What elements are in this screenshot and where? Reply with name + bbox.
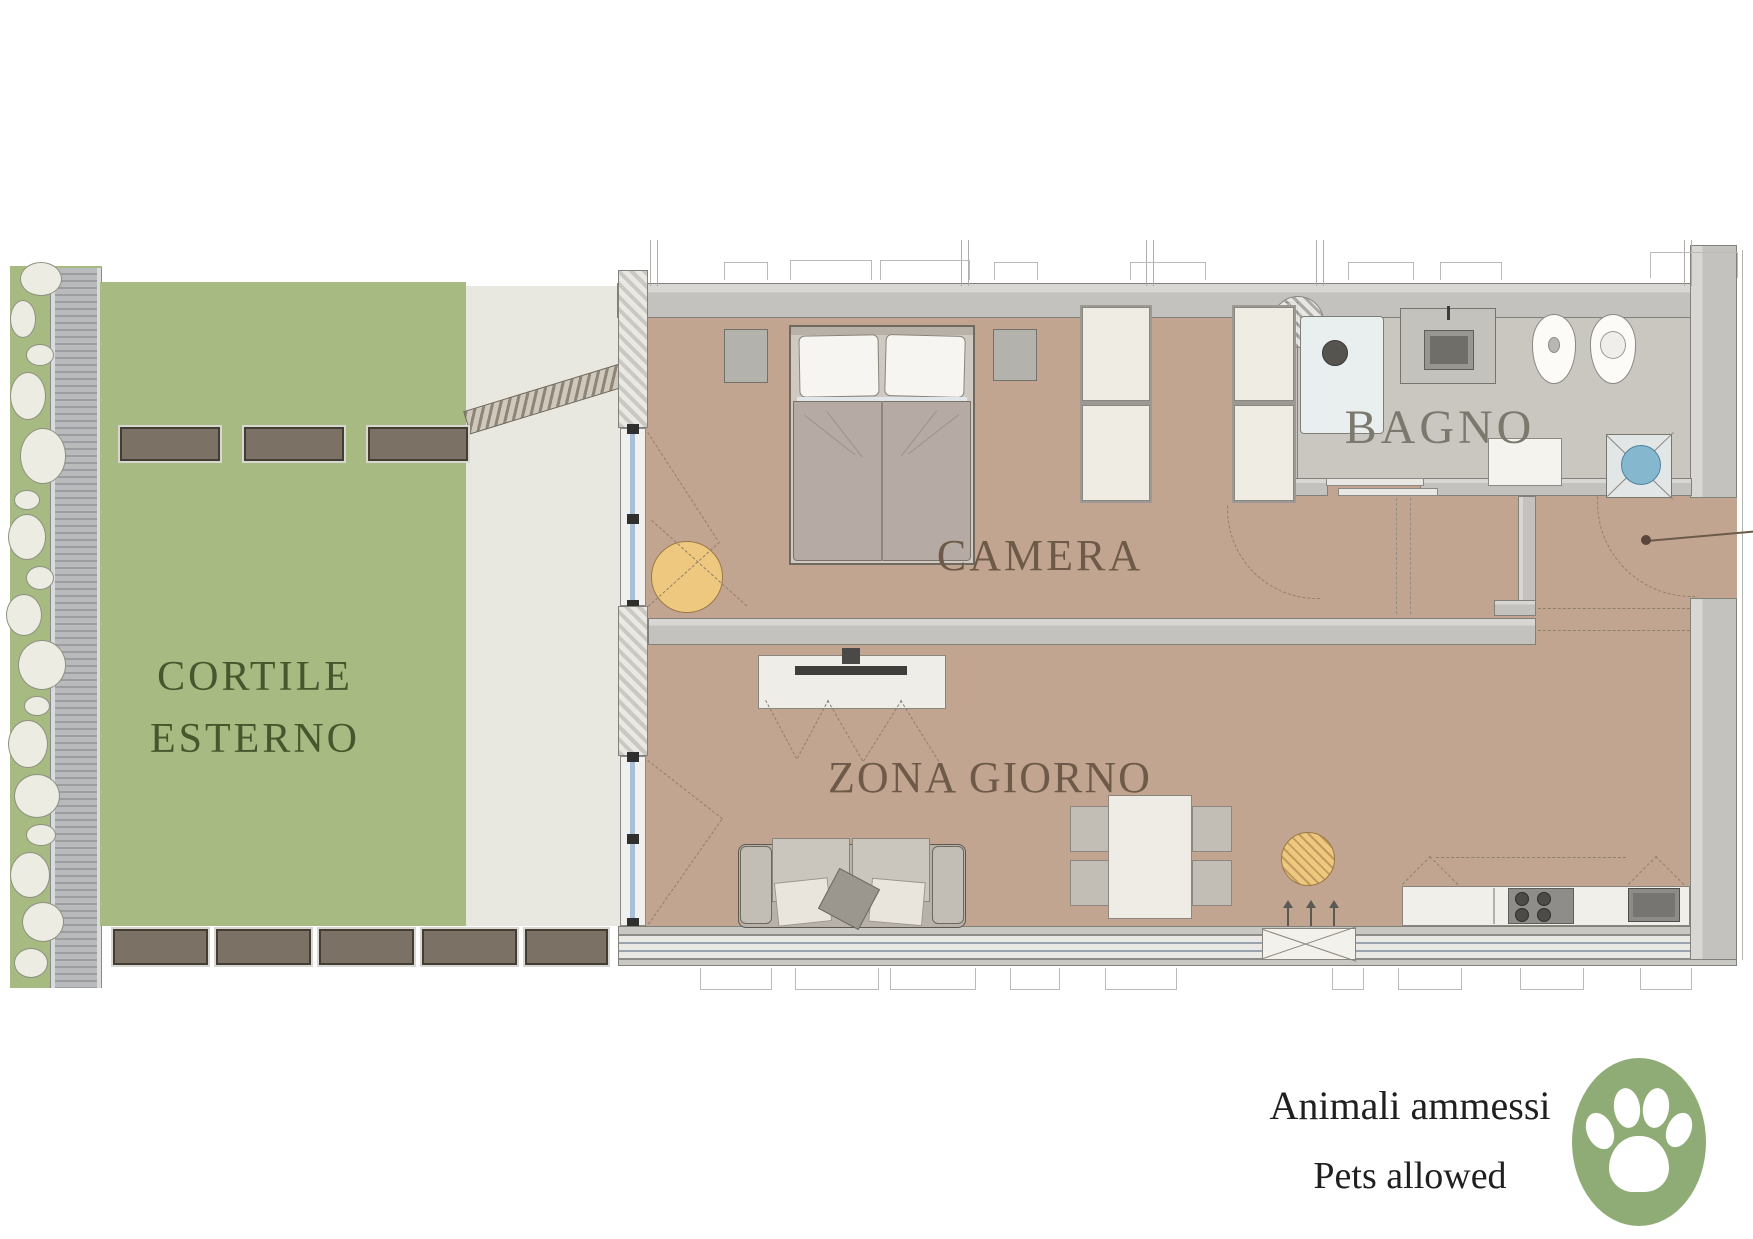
stone [18, 640, 66, 690]
stone [10, 300, 36, 338]
stone [20, 428, 66, 484]
throw-pillow [868, 878, 926, 927]
context-mark [1650, 252, 1738, 278]
wardrobe-cell [1082, 307, 1150, 401]
planter [216, 929, 311, 965]
nightstand [993, 329, 1037, 381]
east-wall-lower [1690, 598, 1737, 960]
headboard [791, 327, 973, 335]
shower-box [1606, 434, 1672, 498]
counter-divider [1493, 888, 1495, 924]
cooktop [1508, 888, 1574, 924]
stone [14, 490, 40, 510]
stone [10, 372, 46, 420]
east-outer-line [1742, 250, 1748, 960]
airflow-arrow [1306, 900, 1316, 926]
planter [244, 427, 344, 461]
sliding-door-panel [1326, 478, 1424, 486]
wardrobe-cell [1234, 405, 1294, 501]
sofa-armrest [740, 846, 772, 924]
context-mark [795, 968, 879, 990]
context-line [650, 240, 658, 286]
zigzag-dash [797, 700, 829, 759]
context-mark [1640, 968, 1692, 990]
airflow-arrow [1283, 900, 1293, 926]
sofa-armrest [932, 846, 964, 924]
context-mark [1105, 968, 1177, 990]
floor-plan: CORTILE ESTERNO [0, 0, 1753, 1239]
burner [1515, 892, 1529, 906]
context-mark [1440, 262, 1502, 280]
pouf [1281, 832, 1335, 886]
planter [525, 929, 608, 965]
radiator-line [1263, 929, 1357, 962]
burner [1537, 892, 1551, 906]
context-mark [700, 968, 772, 990]
context-mark [1332, 968, 1364, 990]
context-mark [724, 262, 768, 280]
stone [8, 720, 48, 768]
radiator-line [1263, 926, 1357, 959]
planter [113, 929, 208, 965]
radiator [1262, 928, 1356, 960]
context-mark [1520, 968, 1584, 990]
window-mullion [627, 514, 639, 524]
window-mullion [627, 752, 639, 762]
pets-allowed-badge [1572, 1058, 1706, 1226]
west-pier-top [618, 270, 648, 428]
north-wall [617, 283, 1737, 318]
stone [22, 902, 64, 942]
planter [319, 929, 414, 965]
wardrobe [1080, 305, 1152, 503]
cortile-line2: ESTERNO [95, 708, 415, 770]
nightstand [724, 329, 768, 383]
planter [422, 929, 517, 965]
dining-chair [1070, 806, 1110, 852]
pets-note-italian: Animali ammessi [1230, 1082, 1590, 1129]
wardrobe [1232, 305, 1296, 503]
tv-screen [795, 666, 907, 675]
pets-note-english: Pets allowed [1230, 1154, 1590, 1198]
dining-chair [1192, 860, 1232, 906]
bidet-hole [1548, 337, 1560, 353]
wardrobe-cell [1234, 307, 1294, 401]
east-wall-upper [1690, 245, 1737, 498]
camera-living-wall [648, 618, 1536, 645]
context-mark [994, 262, 1038, 280]
airflow-arrow [1329, 900, 1339, 926]
opening-dashed-line [1538, 608, 1690, 609]
paw-icon [1587, 1086, 1691, 1198]
stone [14, 948, 48, 978]
burner [1515, 908, 1529, 922]
dining-chair [1192, 806, 1232, 852]
vanity-faucet [1447, 306, 1450, 320]
planter [120, 427, 220, 461]
toilet-seat [1600, 331, 1626, 359]
entrance-door-pivot [1641, 535, 1651, 545]
gravel-path [50, 268, 102, 988]
shower-head [1621, 445, 1661, 485]
upper-cabinet-dash [1436, 857, 1626, 858]
stone [24, 696, 50, 716]
corridor-dashed-line [1396, 498, 1397, 614]
context-mark [1130, 262, 1206, 280]
window-mullion [627, 424, 639, 434]
burner [1537, 908, 1551, 922]
stone [26, 824, 56, 846]
window-mullion [627, 834, 639, 844]
stone [14, 774, 60, 818]
west-pier-mid [618, 606, 648, 756]
dining-table [1108, 795, 1192, 919]
hall-stub-wall [1518, 496, 1536, 612]
context-mark [1010, 968, 1060, 990]
pillow [884, 334, 966, 398]
lawn [100, 282, 466, 926]
stone [8, 514, 46, 560]
hall-stub-foot [1494, 600, 1536, 616]
context-mark [1398, 968, 1462, 990]
room-label-camera: CAMERA [910, 530, 1170, 581]
context-line [1316, 240, 1324, 286]
corridor-dashed-line [1410, 498, 1411, 614]
opening-dashed-line [1538, 630, 1690, 631]
wardrobe-cell [1082, 405, 1150, 501]
room-label-cortile-esterno: CORTILE ESTERNO [95, 646, 415, 770]
cortile-line1: CORTILE [95, 646, 415, 708]
shower-drain [1322, 340, 1348, 366]
dining-chair [1070, 860, 1110, 906]
stone [26, 344, 54, 366]
pillow [798, 334, 879, 397]
sofa [738, 836, 966, 928]
tv-stand [842, 648, 860, 664]
duvet-split [881, 401, 883, 561]
context-mark [890, 968, 976, 990]
planter [368, 427, 468, 461]
context-mark [1348, 262, 1414, 280]
room-label-bagno: BAGNO [1320, 400, 1560, 455]
zigzag-dash [765, 700, 797, 759]
stone [6, 594, 42, 636]
stone [20, 262, 62, 296]
context-mark [790, 260, 872, 280]
sliding-door-panel [1338, 488, 1438, 496]
south-wall-windows [618, 926, 1737, 966]
stone [26, 566, 54, 590]
context-mark [880, 260, 970, 280]
vanity-sink-basin [1430, 336, 1468, 364]
stone [10, 852, 50, 898]
double-bed [789, 325, 975, 565]
kitchen-sink [1628, 888, 1680, 922]
